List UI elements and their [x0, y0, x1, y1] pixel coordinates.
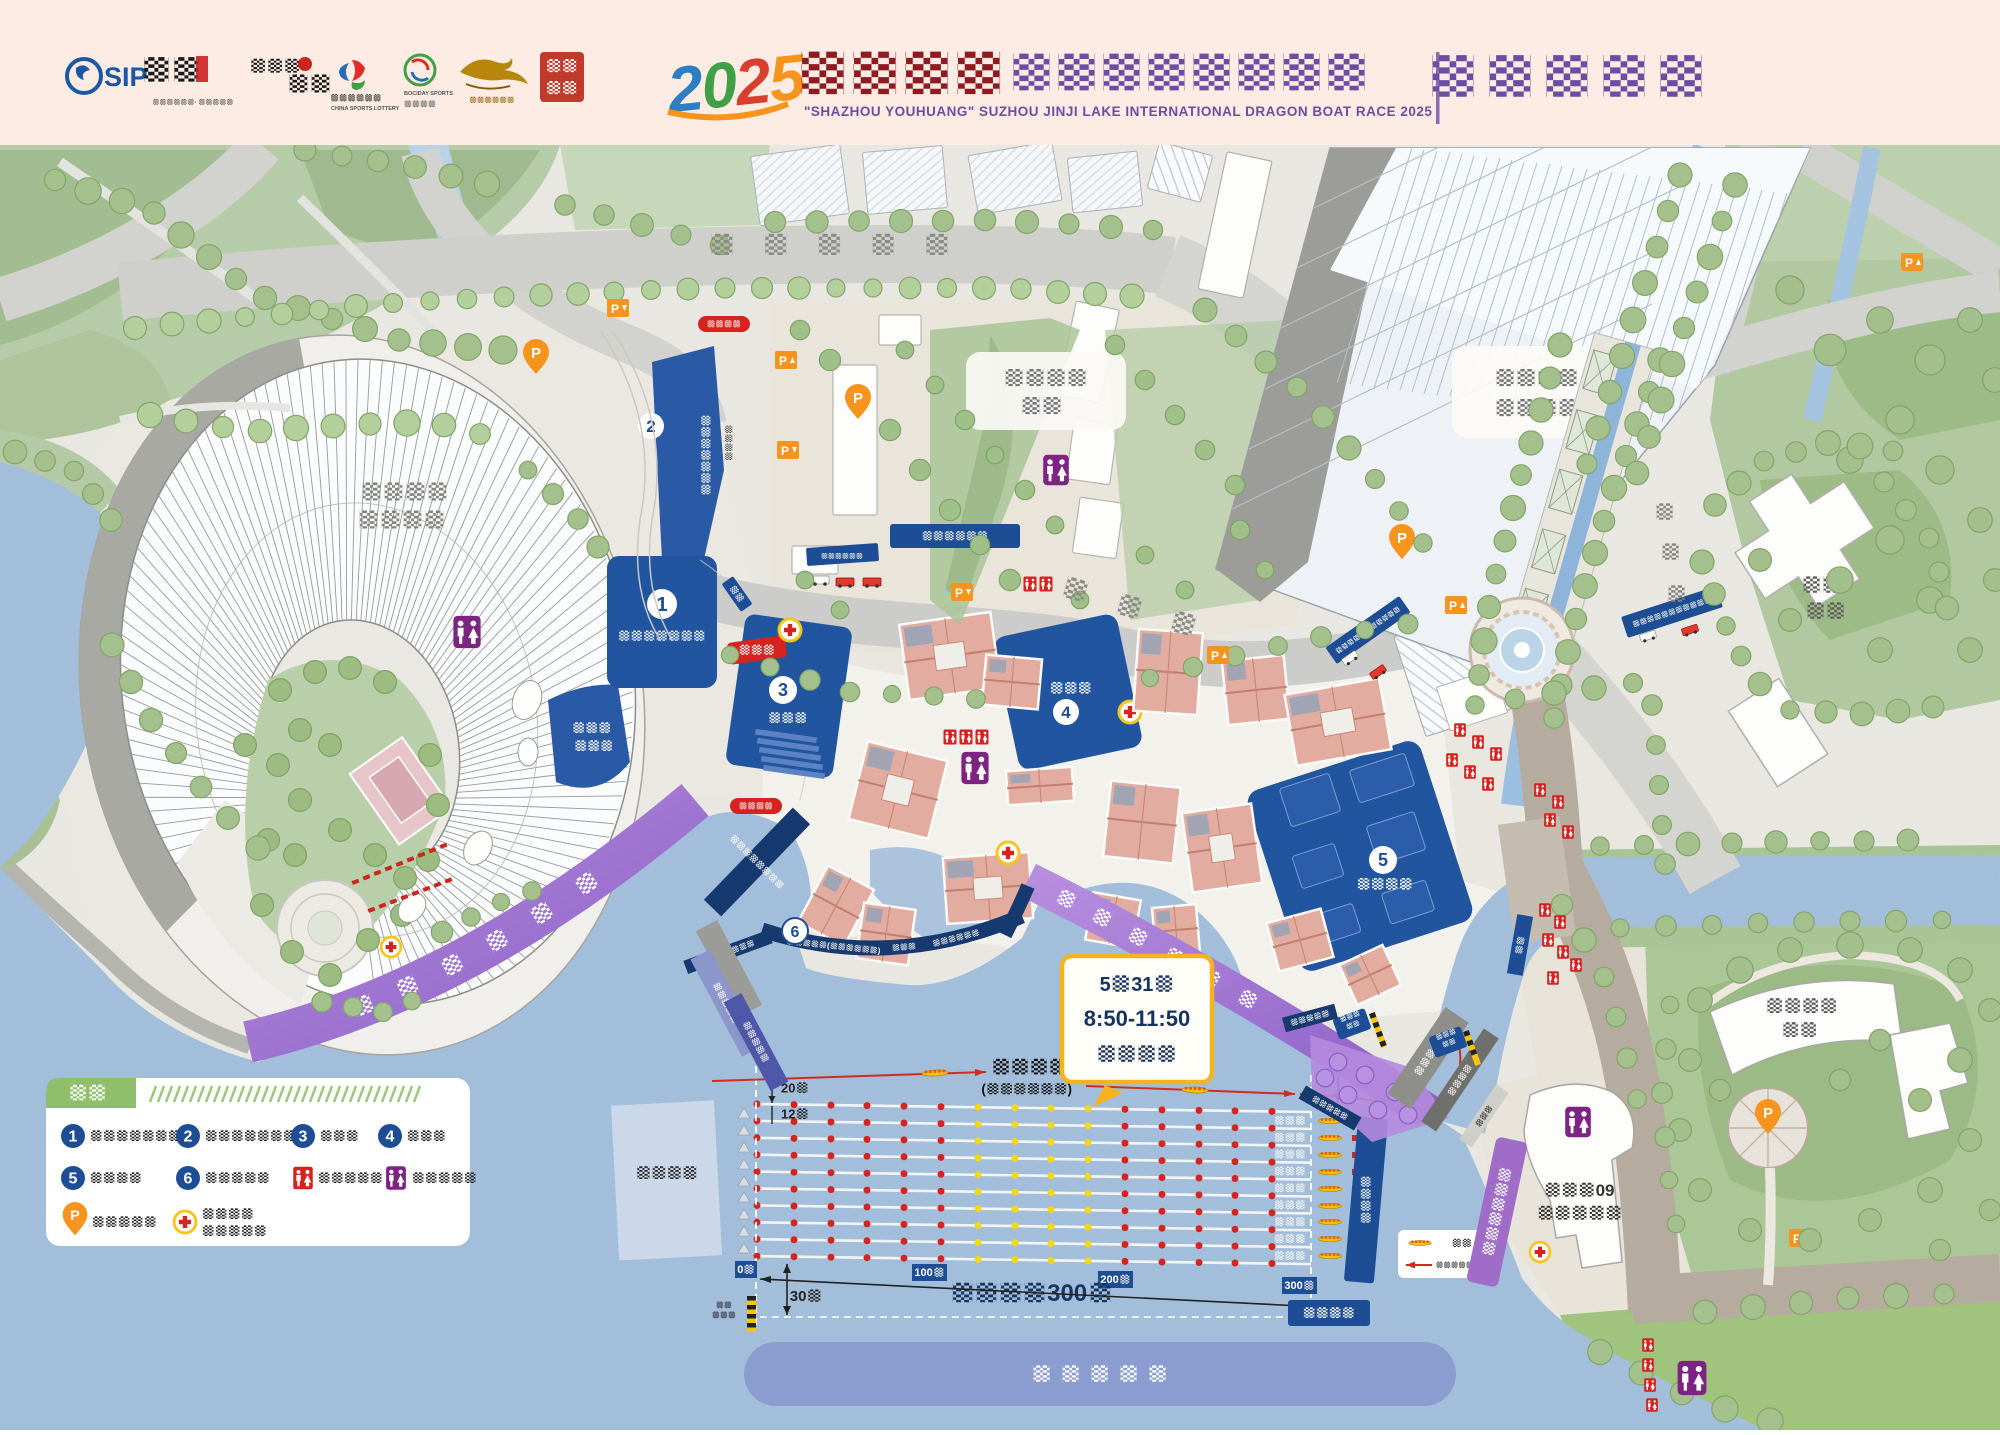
svg-text:(: (: [981, 1082, 986, 1097]
svg-text:"SHAZHOU YOUHUANG" SUZHOU JINJ: "SHAZHOU YOUHUANG" SUZHOU JINJI LAKE INT…: [804, 104, 1432, 119]
svg-text:4: 4: [1061, 703, 1071, 722]
svg-text:0: 0: [737, 1264, 743, 1276]
svg-text:6: 6: [184, 1171, 193, 1188]
svg-text:300: 300: [1284, 1280, 1302, 1292]
svg-text:100: 100: [914, 1267, 932, 1279]
svg-text:09: 09: [1596, 1181, 1615, 1200]
svg-text:·: ·: [195, 99, 197, 106]
svg-text:1: 1: [656, 594, 667, 616]
svg-text:BOCIDAY SPORTS: BOCIDAY SPORTS: [404, 91, 453, 97]
svg-text:8:50-11:50: 8:50-11:50: [1084, 1006, 1190, 1031]
svg-text:SIP: SIP: [104, 62, 148, 92]
svg-text:6: 6: [791, 924, 800, 941]
svg-text:30: 30: [790, 1288, 807, 1305]
svg-text:5: 5: [1378, 850, 1388, 870]
svg-text:5: 5: [69, 1171, 78, 1188]
svg-text:31: 31: [1131, 974, 1153, 996]
svg-text:5: 5: [1100, 974, 1111, 996]
svg-text:3: 3: [299, 1129, 308, 1146]
svg-text:2: 2: [184, 1129, 193, 1146]
svg-text:CHINA SPORTS LOTTERY: CHINA SPORTS LOTTERY: [331, 106, 400, 112]
svg-text:4: 4: [386, 1129, 395, 1146]
svg-text:1: 1: [69, 1129, 78, 1146]
svg-text:12: 12: [781, 1106, 795, 1121]
svg-text:3: 3: [778, 680, 788, 700]
